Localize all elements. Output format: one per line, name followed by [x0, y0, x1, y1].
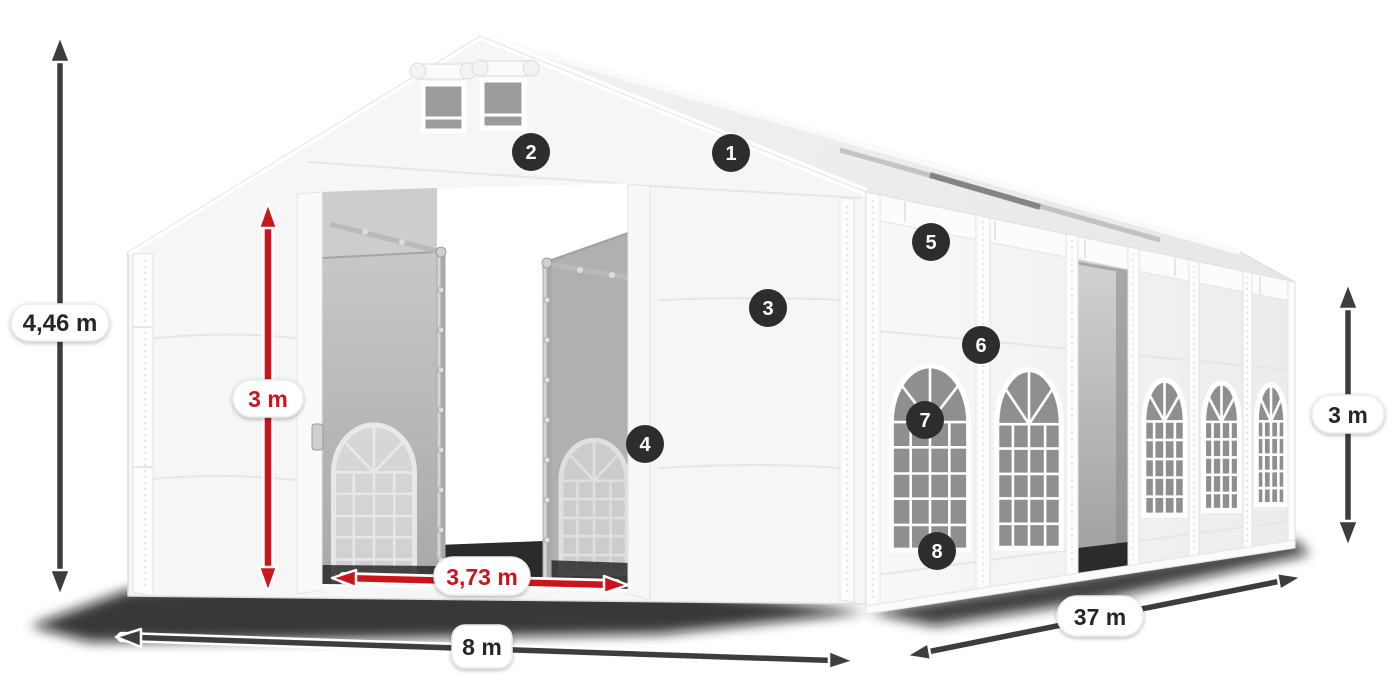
entrance-width-label: 3,73 m [434, 557, 530, 595]
front-corner-strap-right [840, 198, 854, 602]
tent-dimensions-diagram: 4,46 m 3 m 3,73 m 8 m 37 m 3 m 1 2 3 4 5 [0, 0, 1400, 700]
side-window-5 [1256, 385, 1285, 505]
hotspot-6-number: 6 [975, 335, 986, 357]
side-window-1 [891, 366, 968, 550]
vent-window-left [423, 84, 464, 131]
hotspot-5[interactable]: 5 [912, 223, 950, 261]
hotspot-2-number: 2 [525, 142, 536, 164]
hotspot-4[interactable]: 4 [626, 425, 664, 463]
hotspot-3-number: 3 [762, 298, 773, 320]
side-length-label: 37 m [1057, 596, 1143, 636]
hotspot-1-number: 1 [725, 143, 736, 165]
entrance-height-label: 3 m [233, 380, 303, 417]
total-height-label: 4,46 m [11, 304, 109, 341]
side-window-2 [997, 370, 1061, 549]
hotspot-6[interactable]: 6 [962, 326, 1000, 364]
door-pole-right [542, 258, 552, 583]
side-height-value: 3 m [1328, 402, 1368, 428]
hotspot-3[interactable]: 3 [749, 289, 787, 327]
sliding-door-leaf-right-edge [628, 184, 650, 600]
side-window-4 [1204, 383, 1240, 510]
side-door-opening [1078, 259, 1128, 573]
interior-window-right [561, 440, 627, 573]
hotspot-5-number: 5 [925, 232, 936, 254]
side-window-3 [1144, 380, 1185, 515]
entrance-width-value: 3,73 m [446, 564, 518, 590]
hotspot-7-number: 7 [919, 410, 930, 432]
hotspot-7[interactable]: 7 [906, 401, 944, 439]
vent-window-right [482, 80, 524, 128]
entrance-height-value: 3 m [248, 386, 288, 412]
total-height-value: 4,46 m [23, 310, 98, 337]
hotspot-1[interactable]: 1 [712, 134, 750, 172]
door-pole-left [436, 247, 446, 585]
interior-window-left [334, 425, 415, 581]
front-corner-strap-left [133, 254, 153, 596]
front-width-label: 8 m [452, 625, 512, 668]
hotspot-4-number: 4 [639, 434, 651, 456]
front-width-value: 8 m [462, 634, 502, 660]
side-length-value: 37 m [1074, 604, 1126, 630]
hotspot-8-number: 8 [931, 541, 942, 563]
side-height-label: 3 m [1312, 395, 1384, 433]
tent-illustration: 4,46 m 3 m 3,73 m 8 m 37 m 3 m 1 2 3 4 5 [0, 0, 1400, 700]
hotspot-2[interactable]: 2 [512, 133, 550, 171]
front-entrance-opening [297, 183, 650, 600]
hotspot-8[interactable]: 8 [918, 532, 956, 570]
door-handle[interactable] [312, 424, 323, 450]
